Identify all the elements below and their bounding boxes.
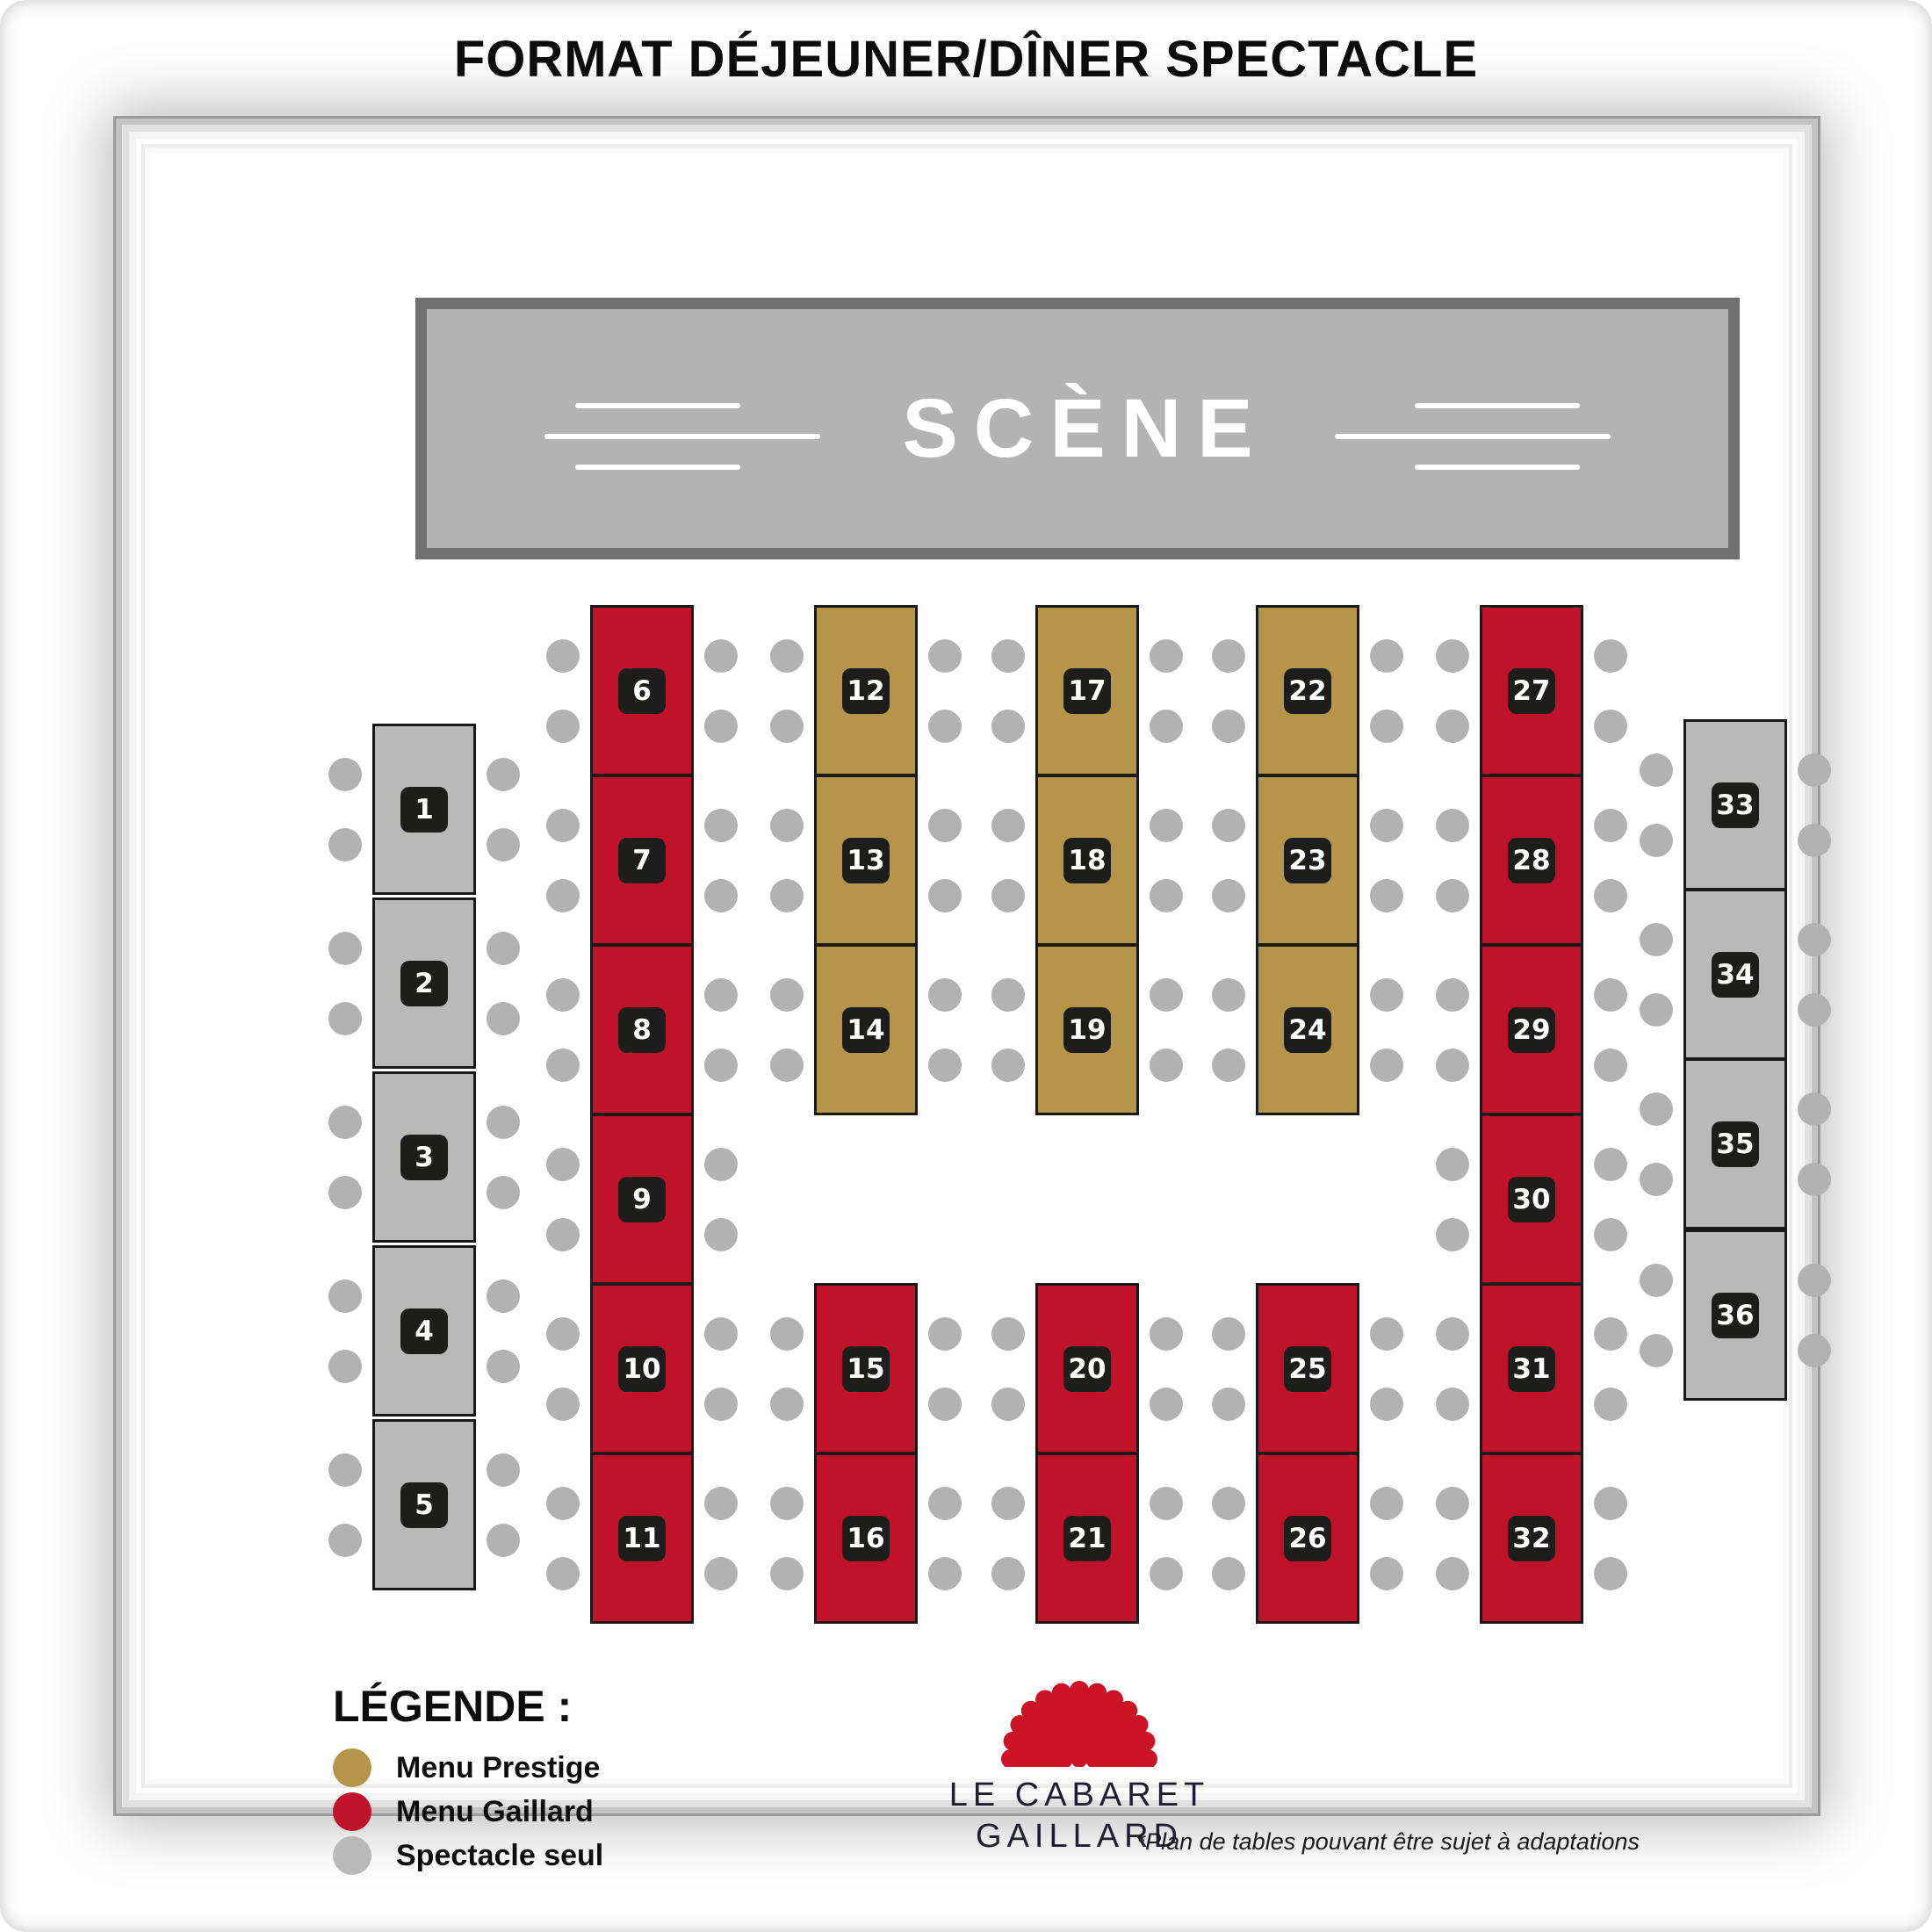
chair-dot [770, 879, 804, 912]
table-13: 13 [814, 775, 918, 946]
table-number-badge: 9 [618, 1177, 666, 1222]
chair-dot [770, 1557, 804, 1590]
table-16: 16 [814, 1453, 918, 1624]
chair-dot [1436, 639, 1469, 673]
chair-dot [546, 1388, 580, 1421]
chair-dot [991, 639, 1025, 673]
chair-dot [928, 809, 962, 842]
table-36: 36 [1683, 1229, 1787, 1401]
chair-dot [1436, 1049, 1469, 1082]
table-7: 7 [590, 775, 694, 946]
chair-dot [770, 1487, 804, 1520]
chair-dot [928, 1557, 962, 1590]
chair-dot [1436, 879, 1469, 912]
chair-dot [1212, 1049, 1245, 1082]
chair-dot [704, 1218, 738, 1251]
chair-dot [928, 1317, 962, 1351]
chair-dot [704, 1557, 738, 1590]
chair-dot [991, 1049, 1025, 1082]
chair-dot [1798, 993, 1831, 1027]
table-number-badge: 28 [1508, 838, 1555, 883]
chair-dot [1798, 824, 1831, 857]
chair-dot [328, 1002, 362, 1035]
table-35: 35 [1683, 1058, 1787, 1229]
stage-decor-line [575, 465, 740, 470]
table-number-badge: 27 [1508, 668, 1555, 714]
table-number-badge: 12 [842, 668, 890, 714]
table-number-badge: 19 [1063, 1007, 1111, 1053]
stage-decor-line [1415, 465, 1580, 470]
chair-dot [546, 1317, 580, 1351]
table-number-badge: 11 [618, 1516, 666, 1561]
chair-dot [704, 1487, 738, 1520]
chair-dot [1370, 978, 1403, 1012]
table-9: 9 [590, 1114, 694, 1285]
seating-plan-page: FORMAT DÉJEUNER/DÎNER SPECTACLE SCÈNE 12… [0, 0, 1932, 1932]
table-number-badge: 18 [1063, 838, 1111, 883]
chair-dot [1370, 639, 1403, 673]
chair-dot [1594, 639, 1627, 673]
chair-dot [1640, 1092, 1673, 1126]
table-31: 31 [1480, 1283, 1583, 1454]
chair-dot [991, 1317, 1025, 1351]
stage-decor-line [1335, 434, 1611, 439]
table-number-badge: 26 [1284, 1516, 1331, 1561]
table-number-badge: 2 [400, 961, 448, 1006]
table-23: 23 [1256, 775, 1359, 946]
chair-dot [928, 978, 962, 1012]
table-number-badge: 20 [1063, 1346, 1111, 1392]
chair-dot [1150, 1557, 1183, 1590]
table-number-badge: 14 [842, 1007, 890, 1053]
chair-dot [1594, 1049, 1627, 1082]
chair-dot [1150, 639, 1183, 673]
chair-dot [1370, 1557, 1403, 1590]
chair-dot [704, 1317, 738, 1351]
chair-dot [1370, 1388, 1403, 1421]
chair-dot [928, 639, 962, 673]
stage-label: SCÈNE [886, 381, 1268, 477]
chair-dot [1640, 1163, 1673, 1196]
table-number-badge: 15 [842, 1346, 890, 1392]
chair-dot [1594, 710, 1627, 743]
table-10: 10 [590, 1283, 694, 1454]
chair-dot [1212, 809, 1245, 842]
chair-dot [487, 828, 520, 861]
chair-dot [1436, 1148, 1469, 1181]
chair-dot [1798, 1334, 1831, 1367]
chair-dot [1436, 1317, 1469, 1351]
chair-dot [487, 1002, 520, 1035]
spectacle-color-dot-icon [333, 1836, 371, 1875]
legend-item-gaillard: Menu Gaillard [333, 1790, 603, 1834]
table-18: 18 [1035, 775, 1139, 946]
chair-dot [704, 710, 738, 743]
chair-dot [1640, 824, 1673, 857]
chair-dot [1640, 753, 1673, 787]
chair-dot [1798, 1264, 1831, 1297]
table-number-badge: 8 [618, 1007, 666, 1053]
table-number-badge: 17 [1063, 668, 1111, 714]
table-20: 20 [1035, 1283, 1139, 1454]
chair-dot [1798, 1163, 1831, 1196]
chair-dot [704, 1049, 738, 1082]
chair-dot [1798, 923, 1831, 956]
chair-dot [704, 809, 738, 842]
table-number-badge: 25 [1284, 1346, 1331, 1392]
chair-dot [1798, 753, 1831, 787]
chair-dot [487, 758, 520, 791]
chair-dot [1150, 978, 1183, 1012]
table-number-badge: 36 [1712, 1293, 1759, 1338]
chair-dot [770, 710, 804, 743]
chair-dot [770, 1317, 804, 1351]
table-28: 28 [1480, 775, 1583, 946]
chair-dot [1150, 1388, 1183, 1421]
table-34: 34 [1683, 889, 1787, 1060]
table-24: 24 [1256, 944, 1359, 1115]
chair-dot [1370, 710, 1403, 743]
chair-dot [328, 1106, 362, 1139]
chair-dot [1150, 710, 1183, 743]
table-19: 19 [1035, 944, 1139, 1115]
table-4: 4 [372, 1245, 476, 1417]
chair-dot [1436, 809, 1469, 842]
chair-dot [1212, 978, 1245, 1012]
table-6: 6 [590, 605, 694, 776]
chair-dot [328, 932, 362, 965]
legend-title: LÉGENDE : [333, 1681, 603, 1732]
table-number-badge: 33 [1712, 782, 1759, 828]
table-21: 21 [1035, 1453, 1139, 1624]
table-22: 22 [1256, 605, 1359, 776]
table-number-badge: 1 [400, 787, 448, 833]
chair-dot [1212, 710, 1245, 743]
chair-dot [1594, 978, 1627, 1012]
chair-dot [546, 1049, 580, 1082]
chair-dot [1436, 1487, 1469, 1520]
chair-dot [770, 1388, 804, 1421]
table-number-badge: 24 [1284, 1007, 1331, 1053]
chair-dot [991, 809, 1025, 842]
chair-dot [770, 1049, 804, 1082]
chair-dot [1212, 879, 1245, 912]
table-number-badge: 23 [1284, 838, 1331, 883]
room-panel: SCÈNE 1234567891011121314151617181920212… [113, 116, 1820, 1816]
chair-dot [1212, 1388, 1245, 1421]
table-1: 1 [372, 724, 476, 895]
chair-dot [546, 978, 580, 1012]
chair-dot [704, 1388, 738, 1421]
chair-dot [328, 1350, 362, 1383]
table-2: 2 [372, 898, 476, 1069]
chair-dot [487, 1280, 520, 1313]
table-15: 15 [814, 1283, 918, 1454]
chair-dot [1212, 639, 1245, 673]
chair-dot [1150, 1317, 1183, 1351]
chair-dot [991, 1557, 1025, 1590]
table-number-badge: 6 [618, 668, 666, 714]
chair-dot [1594, 1148, 1627, 1181]
chair-dot [1370, 879, 1403, 912]
chair-dot [546, 1148, 580, 1181]
chair-dot [770, 639, 804, 673]
chair-dot [1370, 809, 1403, 842]
table-33: 33 [1683, 719, 1787, 890]
stage: SCÈNE [415, 298, 1740, 559]
table-number-badge: 32 [1508, 1516, 1555, 1561]
chair-dot [1212, 1487, 1245, 1520]
table-number-badge: 16 [842, 1516, 890, 1561]
chair-dot [928, 710, 962, 743]
chair-dot [704, 639, 738, 673]
chair-dot [991, 978, 1025, 1012]
chair-dot [1150, 879, 1183, 912]
chair-dot [487, 1453, 520, 1487]
chair-dot [546, 809, 580, 842]
page-title: FORMAT DÉJEUNER/DÎNER SPECTACLE [0, 30, 1932, 89]
chair-dot [770, 809, 804, 842]
prestige-color-dot-icon [333, 1748, 371, 1787]
table-32: 32 [1480, 1453, 1583, 1624]
table-number-badge: 13 [842, 838, 890, 883]
chair-dot [1594, 809, 1627, 842]
table-11: 11 [590, 1453, 694, 1624]
chair-dot [1798, 1092, 1831, 1126]
chair-dot [1436, 710, 1469, 743]
chair-dot [1640, 993, 1673, 1027]
chair-dot [1594, 1317, 1627, 1351]
legend-item-prestige: Menu Prestige [333, 1746, 603, 1790]
chair-dot [1436, 1218, 1469, 1251]
chair-dot [991, 1487, 1025, 1520]
chair-dot [704, 1148, 738, 1181]
chair-dot [770, 978, 804, 1012]
chair-dot [487, 1524, 520, 1557]
chair-dot [928, 1049, 962, 1082]
chair-dot [328, 1453, 362, 1487]
table-number-badge: 7 [618, 838, 666, 883]
table-17: 17 [1035, 605, 1139, 776]
table-12: 12 [814, 605, 918, 776]
chair-dot [1436, 978, 1469, 1012]
table-number-badge: 3 [400, 1135, 448, 1180]
table-number-badge: 31 [1508, 1346, 1555, 1392]
chair-dot [546, 1218, 580, 1251]
chair-dot [328, 828, 362, 861]
chair-dot [928, 879, 962, 912]
chair-dot [546, 710, 580, 743]
chair-dot [1370, 1487, 1403, 1520]
chair-dot [328, 1280, 362, 1313]
chair-dot [1594, 1388, 1627, 1421]
table-number-badge: 34 [1712, 952, 1759, 998]
footnote: *Plan de tables pouvant être sujet à ada… [1136, 1828, 1640, 1856]
chair-dot [1436, 1557, 1469, 1590]
chair-dot [1370, 1317, 1403, 1351]
fan-icon [991, 1676, 1167, 1767]
chair-dot [328, 758, 362, 791]
chair-dot [546, 879, 580, 912]
table-number-badge: 30 [1508, 1177, 1555, 1222]
stage-decor-line [575, 403, 740, 408]
legend-item-label: Menu Gaillard [396, 1795, 594, 1829]
table-number-badge: 21 [1063, 1516, 1111, 1561]
chair-dot [487, 932, 520, 965]
chair-dot [991, 1388, 1025, 1421]
chair-dot [1594, 1218, 1627, 1251]
table-29: 29 [1480, 944, 1583, 1115]
chair-dot [704, 879, 738, 912]
chair-dot [1212, 1317, 1245, 1351]
legend-item-spectacle: Spectacle seul [333, 1834, 603, 1878]
chair-dot [1640, 1264, 1673, 1297]
chair-dot [1370, 1049, 1403, 1082]
table-number-badge: 35 [1712, 1121, 1759, 1167]
chair-dot [928, 1388, 962, 1421]
table-14: 14 [814, 944, 918, 1115]
table-number-badge: 5 [400, 1482, 448, 1528]
gaillard-color-dot-icon [333, 1792, 371, 1831]
chair-dot [1640, 1334, 1673, 1367]
chair-dot [991, 879, 1025, 912]
chair-dot [704, 978, 738, 1012]
chair-dot [1594, 1557, 1627, 1590]
chair-dot [1150, 1487, 1183, 1520]
legend: LÉGENDE : Menu Prestige Menu Gaillard Sp… [333, 1681, 603, 1878]
chair-dot [546, 1557, 580, 1590]
chair-dot [1640, 923, 1673, 956]
stage-decor-line [1415, 403, 1580, 408]
chair-dot [328, 1524, 362, 1557]
table-26: 26 [1256, 1453, 1359, 1624]
table-30: 30 [1480, 1114, 1583, 1285]
chair-dot [991, 710, 1025, 743]
logo-line1: LE CABARET [948, 1777, 1211, 1814]
chair-dot [1594, 1487, 1627, 1520]
table-number-badge: 10 [618, 1346, 666, 1392]
chair-dot [1150, 1049, 1183, 1082]
chair-dot [487, 1106, 520, 1139]
table-27: 27 [1480, 605, 1583, 776]
chair-dot [487, 1350, 520, 1383]
table-number-badge: 29 [1508, 1007, 1555, 1053]
chair-dot [928, 1487, 962, 1520]
chair-dot [1212, 1557, 1245, 1590]
chair-dot [328, 1176, 362, 1209]
chair-dot [1150, 809, 1183, 842]
chair-dot [546, 639, 580, 673]
legend-item-label: Spectacle seul [396, 1839, 603, 1873]
chair-dot [546, 1487, 580, 1520]
chair-dot [487, 1176, 520, 1209]
table-25: 25 [1256, 1283, 1359, 1454]
legend-item-label: Menu Prestige [396, 1751, 600, 1785]
chair-dot [1436, 1388, 1469, 1421]
chair-dot [1594, 879, 1627, 912]
table-8: 8 [590, 944, 694, 1115]
table-number-badge: 22 [1284, 668, 1331, 714]
table-number-badge: 4 [400, 1308, 448, 1354]
table-5: 5 [372, 1419, 476, 1590]
stage-decor-line [544, 434, 820, 439]
table-3: 3 [372, 1071, 476, 1243]
